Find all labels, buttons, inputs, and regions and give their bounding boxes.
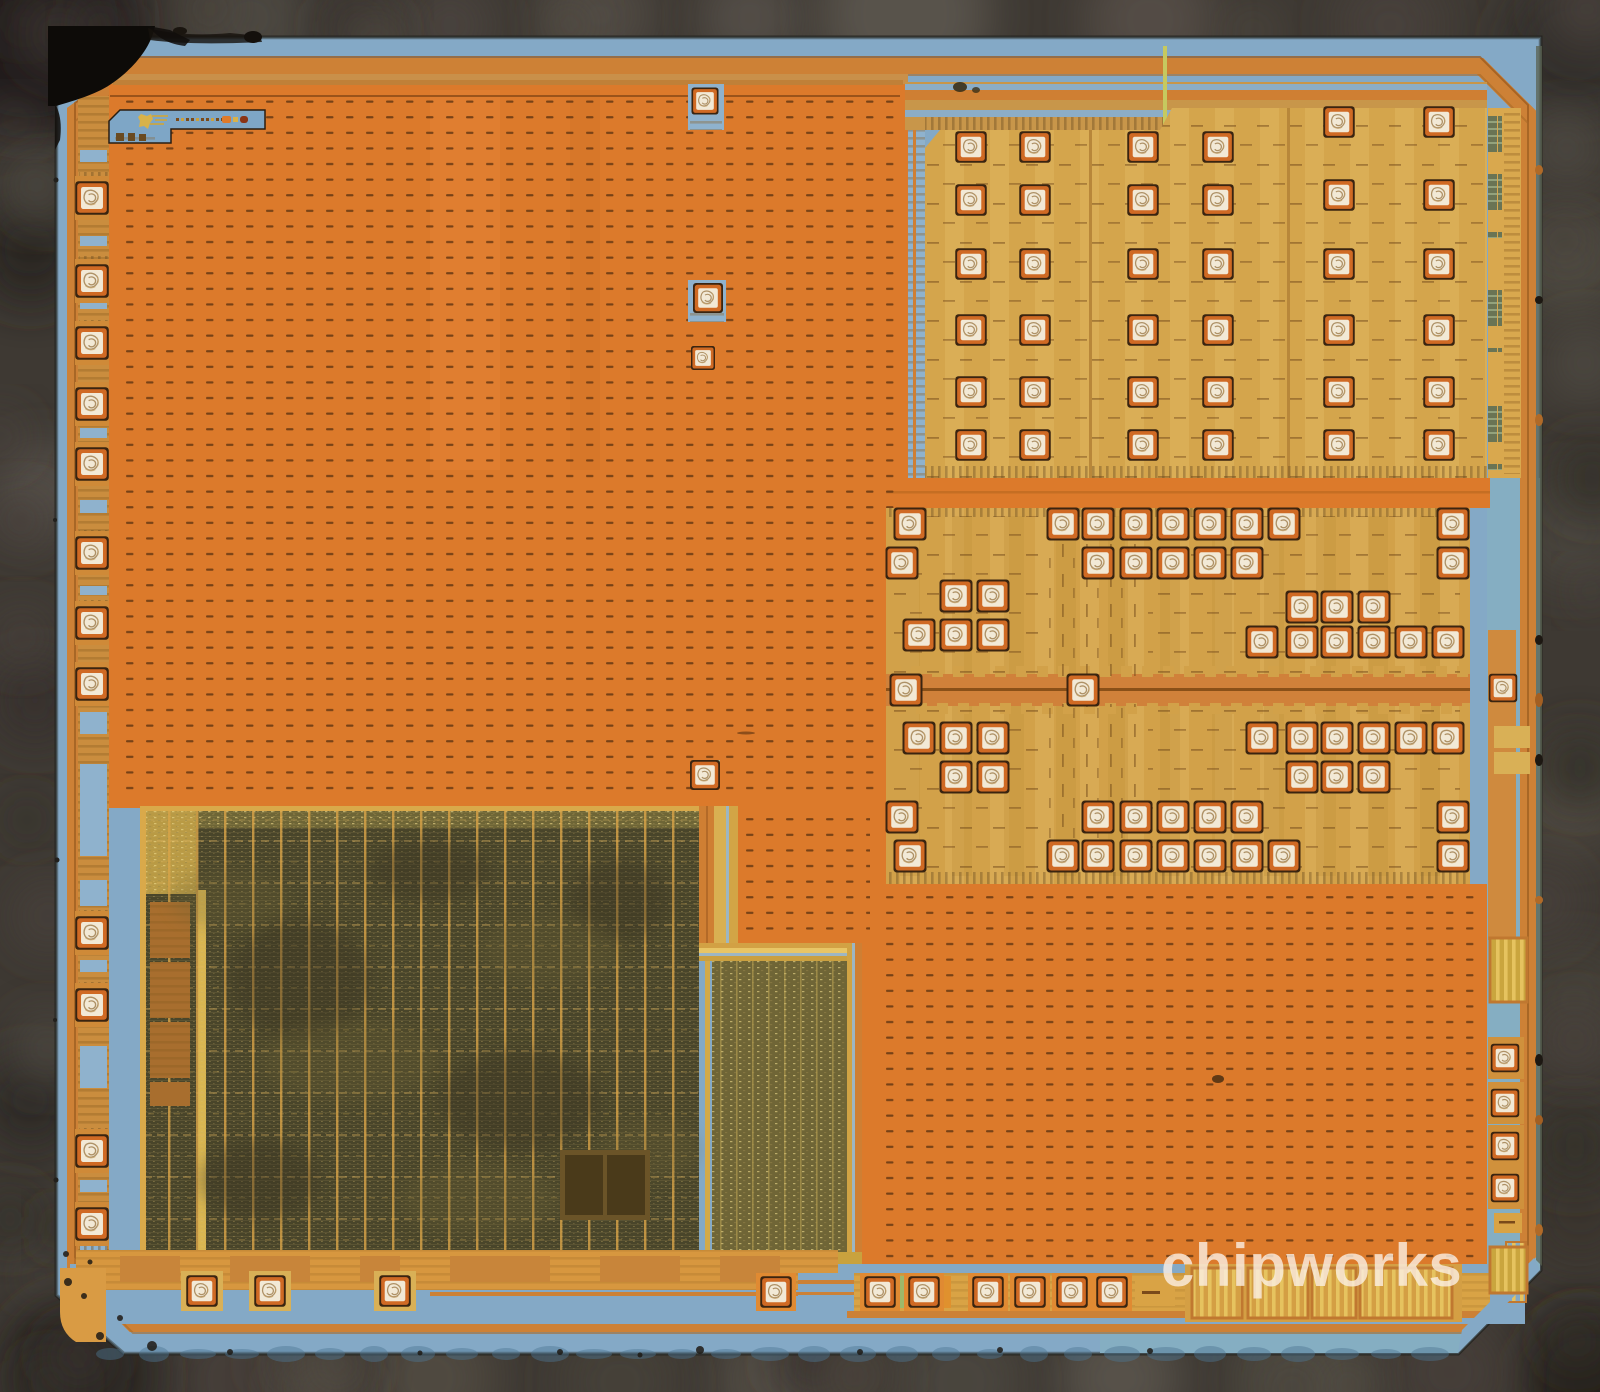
svg-text:chipworks: chipworks — [1161, 1232, 1462, 1299]
